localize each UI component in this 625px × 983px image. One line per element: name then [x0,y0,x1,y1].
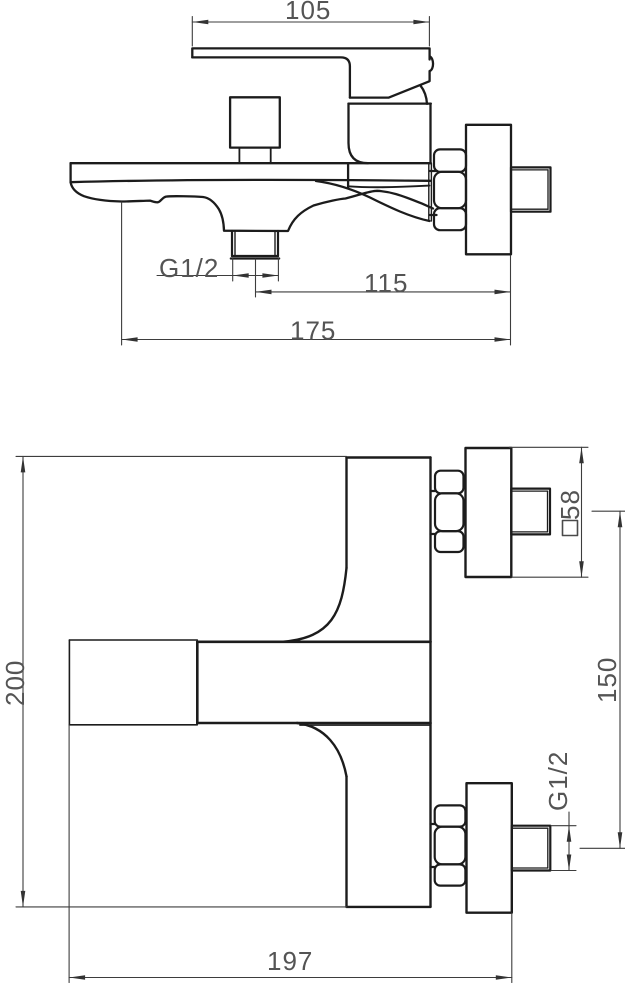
svg-text:200: 200 [0,660,30,706]
svg-text:150: 150 [592,657,622,703]
svg-text:G1/2: G1/2 [159,253,219,283]
svg-text:197: 197 [267,946,313,976]
svg-text:175: 175 [290,316,336,346]
svg-text:G1/2: G1/2 [543,751,573,811]
svg-text:115: 115 [364,268,408,298]
svg-text:58: 58 [555,489,585,520]
svg-text:105: 105 [285,0,331,25]
